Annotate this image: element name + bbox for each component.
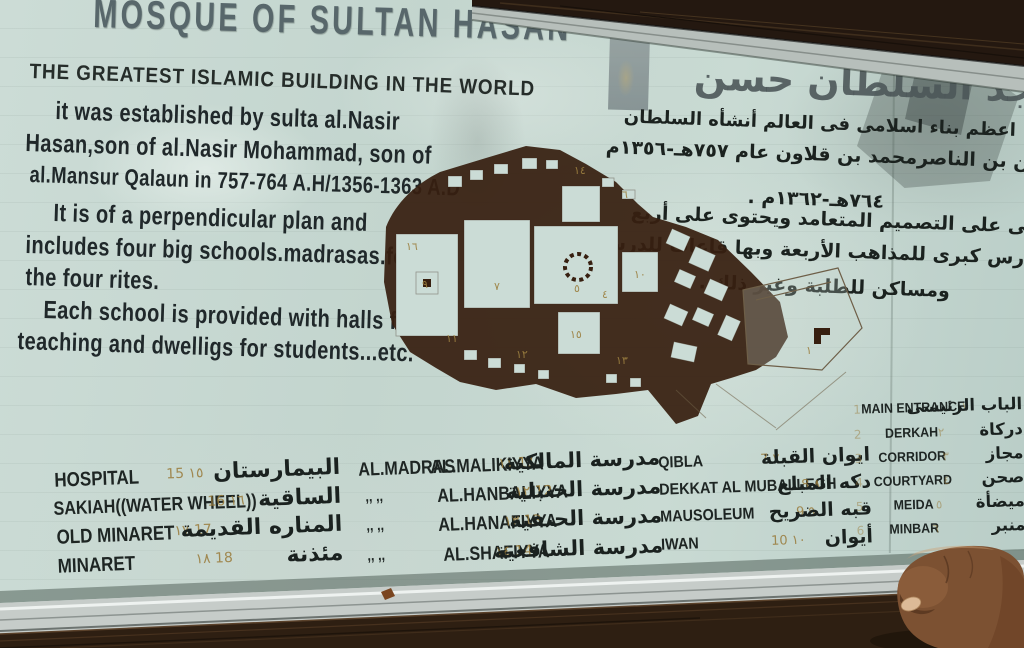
legend-number: ٢ bbox=[938, 425, 945, 439]
legend-number: 10 ١٠ bbox=[771, 533, 806, 549]
floor-plan: ٩ ٧ ٥ ٤ ١٠ ١٤ ١٥ ١١ ١٢ ١٣ ١ ٦ ١٦ bbox=[376, 132, 883, 444]
legend-number: ٥ bbox=[936, 497, 943, 511]
legend-label-ar: الساقية bbox=[258, 484, 342, 512]
svg-text:١١: ١١ bbox=[446, 332, 458, 345]
legend-label-ar: مئذنة bbox=[286, 541, 344, 568]
fountain-octagon bbox=[565, 254, 591, 280]
legend-label-ar: مدرسة المالكية bbox=[503, 445, 660, 474]
svg-text:٩: ٩ bbox=[422, 278, 428, 291]
legend-label-ar: مدرسة الشافعية bbox=[494, 533, 664, 563]
photo-of-information-board: MOSQUE OF SULTAN HASAN THE GREATEST ISLA… bbox=[0, 0, 1024, 648]
legend-number: 16 ١٦ bbox=[207, 492, 245, 509]
legend-label-ar: مدرسة الحنبلية bbox=[506, 474, 662, 503]
legend-label-en: MEIDA bbox=[864, 496, 964, 514]
rust-mark bbox=[381, 588, 395, 600]
svg-text:١٣: ١٣ bbox=[616, 354, 628, 367]
hand bbox=[870, 546, 1024, 648]
legend-label-ar: الباب الرئيسى bbox=[906, 394, 1022, 416]
legend-number: ١٨ 18 bbox=[195, 550, 233, 567]
legend-number: 1 bbox=[853, 403, 861, 417]
legend-label-ar: البيمارستان bbox=[213, 455, 341, 485]
svg-text:٤: ٤ bbox=[602, 288, 608, 301]
legend-row: 6 MINBAR ٦ منبر bbox=[848, 518, 1024, 547]
svg-text:٦: ٦ bbox=[622, 188, 628, 201]
svg-text:١٤: ١٤ bbox=[574, 164, 586, 177]
board-title-arabic: مسجد السلطان حسن bbox=[693, 54, 1024, 113]
legend-number: 4 bbox=[855, 476, 863, 490]
body-line: It is of a perpendicular plan and bbox=[53, 199, 368, 238]
legend-label-ar: منبر bbox=[991, 515, 1024, 535]
legend-number: 15 ١٥ bbox=[166, 465, 204, 482]
legend-label-en: MAUSOLEUM bbox=[660, 505, 755, 526]
legend-label-en: OLD MINARET bbox=[56, 522, 175, 550]
svg-text:٥: ٥ bbox=[574, 282, 580, 295]
svg-text:١: ١ bbox=[806, 344, 812, 357]
legend-qibla-column: QIBLA 7 ٧ ايوان القبلة DEKKAT AL MUBALLE… bbox=[652, 447, 870, 455]
legend-label-ar: ميضأة bbox=[975, 491, 1024, 511]
legend-number: 3 bbox=[854, 452, 862, 466]
legend-label-en: HOSPITAL bbox=[54, 467, 140, 493]
svg-text:١٥: ١٥ bbox=[570, 328, 582, 341]
bottom-ledge bbox=[0, 589, 1024, 648]
legend-label-en: IWAN bbox=[661, 535, 699, 554]
ditto-marks: ,, ,, bbox=[367, 547, 385, 565]
legend-number: 2 bbox=[854, 428, 862, 442]
board-title-english: MOSQUE OF SULTAN HASAN bbox=[93, 0, 572, 50]
legend-label-en: MINBAR bbox=[864, 520, 964, 538]
legend-number: ٤ bbox=[943, 473, 950, 487]
glass-reflection-rectangle bbox=[608, 33, 650, 110]
legend-number: 6 bbox=[856, 524, 864, 538]
legend-label-ar: المناره القديمة bbox=[180, 512, 343, 543]
legend-label-ar: دركاة bbox=[979, 419, 1023, 439]
svg-text:١٢: ١٢ bbox=[516, 348, 528, 361]
ditto-marks: ,, ,, bbox=[366, 517, 384, 535]
legend-facility-column: HOSPITAL 15 ١٥ البيمارستان SAKIAH((WATER… bbox=[48, 459, 340, 470]
ditto-marks: ,, ,, bbox=[365, 488, 383, 506]
svg-text:١٠: ١٠ bbox=[634, 268, 646, 281]
legend-number: ٣ bbox=[942, 449, 949, 463]
legend-label-ar: صحن bbox=[981, 467, 1024, 487]
legend-madrasa-column: AL.MADRAS AL.MALIKIYYA ١١ 11 مدرسة المال… bbox=[352, 449, 660, 460]
legend-label-ar: مدرسة الحنفية bbox=[509, 503, 663, 532]
legend-number: ٦ bbox=[932, 521, 939, 535]
legend-number: 5 bbox=[856, 500, 864, 514]
legend-label-ar: مجاز bbox=[985, 443, 1023, 463]
svg-text:١٦: ١٦ bbox=[406, 240, 418, 253]
legend-label-en: DERKAH bbox=[862, 424, 962, 442]
body-line: the four rites. bbox=[25, 263, 160, 296]
legend-label-en: MINARET bbox=[57, 553, 135, 579]
svg-text:٧: ٧ bbox=[494, 280, 500, 293]
legend-label-en: QIBLA bbox=[658, 453, 703, 473]
